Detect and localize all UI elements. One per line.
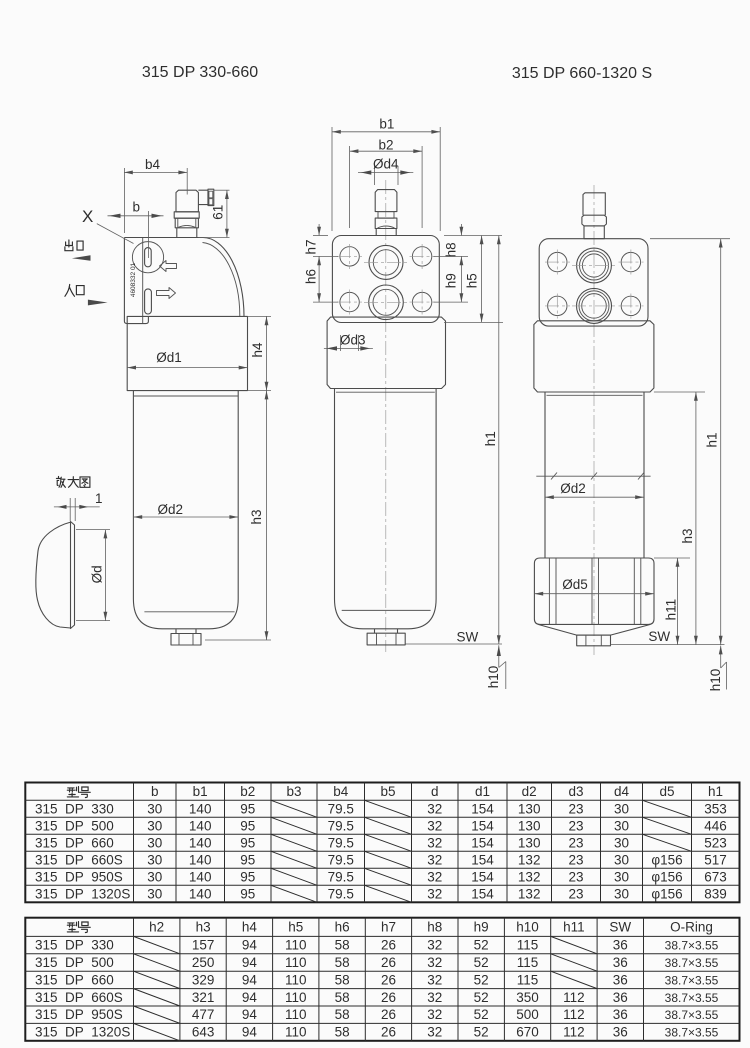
svg-text:52: 52 <box>474 938 489 953</box>
svg-text:Ød2: Ød2 <box>158 502 184 517</box>
svg-text:130: 130 <box>518 818 541 833</box>
svg-text:30: 30 <box>614 801 629 816</box>
svg-text:30: 30 <box>147 852 162 867</box>
svg-text:154: 154 <box>471 818 494 833</box>
svg-text:643: 643 <box>192 1025 215 1040</box>
svg-text:315 DP 500: 315 DP 500 <box>35 955 114 970</box>
svg-text:h3: h3 <box>196 920 211 935</box>
svg-text:26: 26 <box>381 990 396 1005</box>
svg-text:h4: h4 <box>250 342 265 358</box>
svg-text:26: 26 <box>381 1025 396 1040</box>
svg-text:94: 94 <box>242 972 258 987</box>
svg-text:329: 329 <box>192 972 215 987</box>
svg-text:315 DP 660S: 315 DP 660S <box>35 990 123 1005</box>
svg-text:315 DP 330-660: 315 DP 330-660 <box>142 64 258 81</box>
svg-text:58: 58 <box>335 955 350 970</box>
svg-text:b: b <box>151 784 159 799</box>
svg-text:315 DP 660S: 315 DP 660S <box>35 852 123 867</box>
svg-text:250: 250 <box>192 955 215 970</box>
svg-text:130: 130 <box>518 801 541 816</box>
svg-text:110: 110 <box>285 972 307 987</box>
svg-text:4608332 01: 4608332 01 <box>130 262 137 297</box>
svg-text:52: 52 <box>474 990 489 1005</box>
svg-text:132: 132 <box>518 886 541 901</box>
svg-text:h10: h10 <box>486 666 501 689</box>
svg-text:h1: h1 <box>704 432 719 447</box>
svg-text:315 DP 950S: 315 DP 950S <box>35 1007 123 1022</box>
svg-text:315 DP 1320S: 315 DP 1320S <box>35 886 130 901</box>
svg-text:23: 23 <box>568 835 583 850</box>
svg-text:95: 95 <box>240 818 255 833</box>
svg-text:h1: h1 <box>483 431 498 446</box>
svg-text:h7: h7 <box>304 239 319 254</box>
svg-text:673: 673 <box>704 869 727 884</box>
svg-text:h7: h7 <box>381 920 396 935</box>
svg-text:b5: b5 <box>380 784 395 799</box>
svg-text:112: 112 <box>563 990 585 1005</box>
svg-text:112: 112 <box>563 1007 585 1022</box>
svg-text:32: 32 <box>427 1025 442 1040</box>
svg-text:23: 23 <box>568 869 583 884</box>
svg-text:36: 36 <box>613 955 628 970</box>
svg-text:Ød1: Ød1 <box>156 350 182 365</box>
svg-text:140: 140 <box>189 835 212 850</box>
svg-text:110: 110 <box>285 990 307 1005</box>
svg-text:h10: h10 <box>516 920 539 935</box>
svg-text:32: 32 <box>427 852 442 867</box>
svg-text:94: 94 <box>242 955 258 970</box>
svg-text:30: 30 <box>614 852 629 867</box>
svg-text:321: 321 <box>192 990 215 1005</box>
svg-text:h6: h6 <box>304 269 319 284</box>
svg-text:315 DP 330: 315 DP 330 <box>35 938 114 953</box>
svg-text:32: 32 <box>427 886 442 901</box>
svg-text:58: 58 <box>335 1007 350 1022</box>
svg-text:58: 58 <box>335 990 350 1005</box>
svg-text:h5: h5 <box>465 273 480 288</box>
svg-text:140: 140 <box>189 801 212 816</box>
svg-text:517: 517 <box>704 852 727 867</box>
svg-text:26: 26 <box>381 1007 396 1022</box>
svg-text:79.5: 79.5 <box>328 886 354 901</box>
svg-text:30: 30 <box>147 886 162 901</box>
svg-text:h10: h10 <box>708 669 723 692</box>
svg-text:112: 112 <box>563 1025 585 1040</box>
svg-text:79.5: 79.5 <box>328 869 354 884</box>
svg-text:79.5: 79.5 <box>328 852 354 867</box>
svg-text:h11: h11 <box>563 920 585 935</box>
svg-text:30: 30 <box>614 869 629 884</box>
svg-text:φ156: φ156 <box>651 869 682 884</box>
svg-text:Ød3: Ød3 <box>340 333 366 348</box>
svg-text:350: 350 <box>516 990 539 1005</box>
svg-text:79.5: 79.5 <box>328 818 354 833</box>
svg-text:Ød4: Ød4 <box>373 157 399 172</box>
svg-text:b1: b1 <box>379 117 394 132</box>
svg-text:h4: h4 <box>242 920 258 935</box>
svg-text:30: 30 <box>147 835 162 850</box>
svg-text:353: 353 <box>704 801 727 816</box>
svg-text:23: 23 <box>568 886 583 901</box>
svg-text:38.7×3.55: 38.7×3.55 <box>665 973 719 987</box>
svg-text:52: 52 <box>474 955 489 970</box>
svg-text:500: 500 <box>516 1007 539 1022</box>
svg-text:315 DP 660: 315 DP 660 <box>35 835 114 850</box>
svg-text:32: 32 <box>427 818 442 833</box>
svg-text:32: 32 <box>427 990 442 1005</box>
svg-text:SW: SW <box>648 629 670 644</box>
svg-text:130: 130 <box>518 835 541 850</box>
svg-text:h9: h9 <box>474 920 489 935</box>
svg-text:Ød5: Ød5 <box>562 577 588 592</box>
svg-text:O-Ring: O-Ring <box>670 920 713 935</box>
svg-text:154: 154 <box>471 886 494 901</box>
svg-text:b3: b3 <box>286 784 301 799</box>
svg-text:95: 95 <box>240 869 255 884</box>
svg-text:140: 140 <box>189 818 212 833</box>
svg-text:36: 36 <box>613 938 628 953</box>
svg-text:477: 477 <box>192 1007 215 1022</box>
svg-text:23: 23 <box>568 818 583 833</box>
svg-text:h9: h9 <box>443 273 458 288</box>
svg-text:32: 32 <box>427 801 442 816</box>
svg-text:154: 154 <box>471 869 494 884</box>
svg-text:315 DP 660: 315 DP 660 <box>35 972 114 987</box>
svg-text:h6: h6 <box>335 920 350 935</box>
svg-text:58: 58 <box>335 1025 350 1040</box>
svg-text:32: 32 <box>427 938 442 953</box>
svg-text:h3: h3 <box>680 528 695 543</box>
svg-text:95: 95 <box>240 852 255 867</box>
svg-text:38.7×3.55: 38.7×3.55 <box>665 1008 719 1022</box>
svg-text:30: 30 <box>614 818 629 833</box>
svg-text:26: 26 <box>381 955 396 970</box>
svg-text:38.7×3.55: 38.7×3.55 <box>665 1026 719 1040</box>
svg-text:95: 95 <box>240 835 255 850</box>
svg-text:b2: b2 <box>378 138 393 153</box>
svg-text:157: 157 <box>192 938 215 953</box>
svg-text:132: 132 <box>518 852 541 867</box>
svg-text:110: 110 <box>285 1025 307 1040</box>
svg-text:94: 94 <box>242 1025 258 1040</box>
svg-text:1: 1 <box>95 491 103 506</box>
svg-text:φ156: φ156 <box>651 852 682 867</box>
svg-text:h2: h2 <box>149 920 164 935</box>
svg-text:b2: b2 <box>240 784 255 799</box>
svg-text:36: 36 <box>613 1025 628 1040</box>
svg-text:h3: h3 <box>249 509 264 524</box>
svg-text:30: 30 <box>147 869 162 884</box>
svg-text:52: 52 <box>474 1007 489 1022</box>
svg-text:b4: b4 <box>145 157 161 172</box>
svg-text:140: 140 <box>189 869 212 884</box>
svg-text:d4: d4 <box>614 784 630 799</box>
svg-text:32: 32 <box>427 835 442 850</box>
svg-text:140: 140 <box>189 852 212 867</box>
svg-text:38.7×3.55: 38.7×3.55 <box>665 956 719 970</box>
svg-text:h8: h8 <box>443 242 458 257</box>
svg-text:58: 58 <box>335 972 350 987</box>
svg-text:315 DP 950S: 315 DP 950S <box>35 869 123 884</box>
svg-text:SW: SW <box>457 630 479 645</box>
svg-text:115: 115 <box>517 938 539 953</box>
svg-text:b: b <box>133 200 141 215</box>
svg-text:154: 154 <box>471 852 494 867</box>
svg-text:d3: d3 <box>568 784 583 799</box>
svg-text:32: 32 <box>427 972 442 987</box>
svg-text:94: 94 <box>242 990 258 1005</box>
svg-text:315 DP 330: 315 DP 330 <box>35 801 114 816</box>
svg-text:79.5: 79.5 <box>328 801 354 816</box>
svg-text:32: 32 <box>427 869 442 884</box>
svg-text:d5: d5 <box>659 784 674 799</box>
svg-text:95: 95 <box>240 801 255 816</box>
svg-text:94: 94 <box>242 938 258 953</box>
svg-text:26: 26 <box>381 972 396 987</box>
svg-text:52: 52 <box>474 972 489 987</box>
svg-text:52: 52 <box>474 1025 489 1040</box>
svg-text:110: 110 <box>285 938 307 953</box>
svg-text:d2: d2 <box>522 784 537 799</box>
svg-text:30: 30 <box>147 818 162 833</box>
svg-text:φ156: φ156 <box>651 886 682 901</box>
svg-text:d1: d1 <box>475 784 490 799</box>
svg-text:154: 154 <box>471 835 494 850</box>
svg-text:36: 36 <box>613 990 628 1005</box>
svg-text:38.7×3.55: 38.7×3.55 <box>665 991 719 1005</box>
svg-text:26: 26 <box>381 938 396 953</box>
svg-text:839: 839 <box>704 886 727 901</box>
svg-text:58: 58 <box>335 938 350 953</box>
svg-text:36: 36 <box>613 1007 628 1022</box>
svg-text:140: 140 <box>189 886 212 901</box>
svg-text:670: 670 <box>516 1025 539 1040</box>
svg-text:110: 110 <box>285 1007 307 1022</box>
svg-text:h11: h11 <box>664 599 679 621</box>
svg-text:61: 61 <box>211 205 226 220</box>
svg-text:315 DP 660-1320 S: 315 DP 660-1320 S <box>512 65 652 82</box>
svg-text:h8: h8 <box>427 920 442 935</box>
svg-text:523: 523 <box>704 835 727 850</box>
svg-text:32: 32 <box>427 955 442 970</box>
svg-text:315 DP 1320S: 315 DP 1320S <box>35 1025 130 1040</box>
svg-text:38.7×3.55: 38.7×3.55 <box>665 939 719 953</box>
svg-text:b4: b4 <box>333 784 349 799</box>
svg-text:132: 132 <box>518 869 541 884</box>
svg-text:315 DP 500: 315 DP 500 <box>35 818 114 833</box>
svg-text:36: 36 <box>613 972 628 987</box>
svg-text:Ød: Ød <box>89 565 104 583</box>
svg-text:32: 32 <box>427 1007 442 1022</box>
svg-text:30: 30 <box>614 886 629 901</box>
svg-text:446: 446 <box>704 818 727 833</box>
svg-text:95: 95 <box>240 886 255 901</box>
svg-text:X: X <box>82 207 93 226</box>
svg-text:h5: h5 <box>288 920 303 935</box>
svg-text:23: 23 <box>568 801 583 816</box>
svg-text:30: 30 <box>614 835 629 850</box>
svg-text:115: 115 <box>517 955 539 970</box>
svg-text:Ød2: Ød2 <box>560 481 586 496</box>
svg-text:115: 115 <box>517 972 539 987</box>
svg-text:SW: SW <box>609 920 631 935</box>
svg-text:30: 30 <box>147 801 162 816</box>
svg-text:79.5: 79.5 <box>328 835 354 850</box>
svg-text:h1: h1 <box>708 784 723 799</box>
svg-text:94: 94 <box>242 1007 258 1022</box>
svg-text:23: 23 <box>568 852 583 867</box>
svg-text:110: 110 <box>285 955 307 970</box>
svg-text:d: d <box>431 784 439 799</box>
svg-text:154: 154 <box>471 801 494 816</box>
svg-text:b1: b1 <box>193 784 208 799</box>
